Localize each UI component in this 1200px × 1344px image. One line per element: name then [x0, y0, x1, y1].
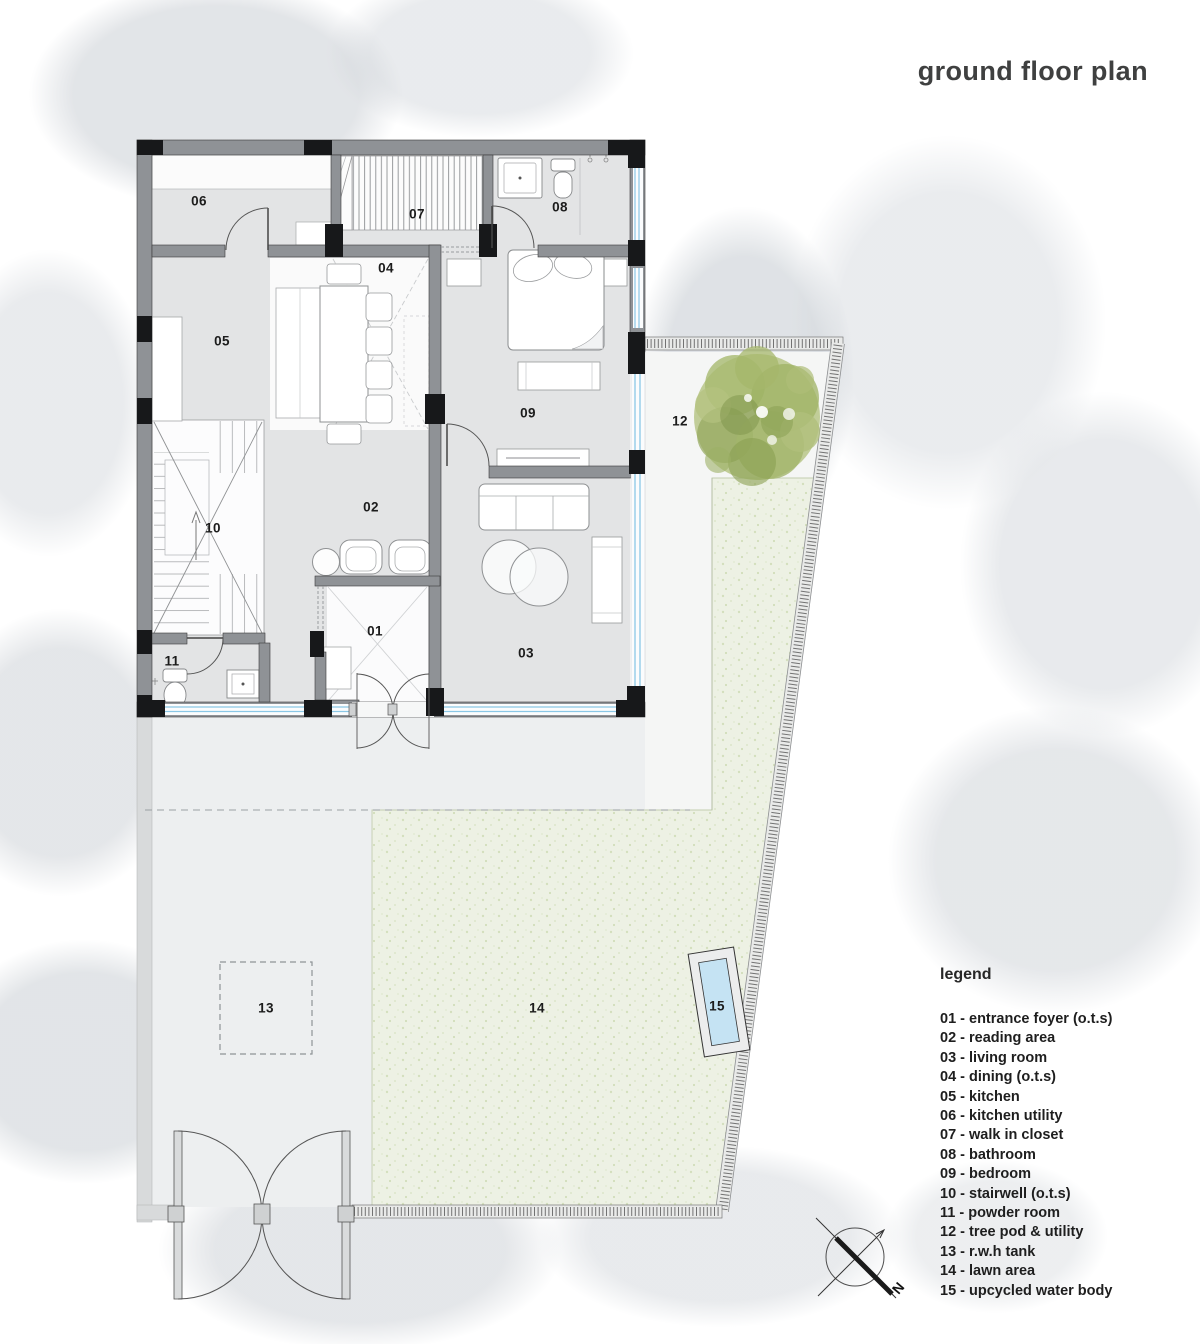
room-label-13: 13 [258, 1001, 274, 1016]
room-label-11: 11 [164, 654, 179, 669]
legend-item: 09 - bedroom [940, 1165, 1190, 1184]
wc-icon [551, 159, 575, 171]
sofa-icon [479, 484, 589, 530]
north-compass [816, 1218, 896, 1298]
tv-console-icon [497, 449, 589, 468]
side-table-icon [313, 549, 340, 576]
room-label-06: 06 [191, 194, 207, 209]
legend-item: 01 - entrance foyer (o.t.s) [940, 1010, 1190, 1029]
legend-item: 15 - upcycled water body [940, 1282, 1190, 1301]
legend-item: 06 - kitchen utility [940, 1107, 1190, 1126]
legend-item: 07 - walk in closet [940, 1126, 1190, 1145]
legend-item: 02 - reading area [940, 1029, 1190, 1048]
room-label-02: 02 [363, 500, 379, 515]
room-label-03: 03 [518, 646, 534, 661]
room-label-09: 09 [520, 406, 536, 421]
room-label-14: 14 [529, 1001, 545, 1016]
kitchen-island [276, 288, 320, 418]
entrance-foyer [324, 586, 428, 702]
legend-item: 13 - r.w.h tank [940, 1243, 1190, 1262]
bed-bench-icon [518, 362, 600, 390]
legend-item: 03 - living room [940, 1049, 1190, 1068]
legend-item: 12 - tree pod & utility [940, 1223, 1190, 1242]
legend-title: legend [940, 966, 1190, 984]
building [137, 140, 645, 749]
room-label-05: 05 [214, 334, 230, 349]
legend-item: 08 - bathroom [940, 1146, 1190, 1165]
foyer-cabinet [324, 647, 351, 689]
legend-item: 14 - lawn area [940, 1262, 1190, 1281]
north-needle [836, 1238, 892, 1294]
daybed-icon [592, 537, 622, 623]
legend: legend 01 - entrance foyer (o.t.s) 02 - … [940, 966, 1190, 1301]
legend-item: 10 - stairwell (o.t.s) [940, 1185, 1190, 1204]
room-label-10: 10 [205, 521, 221, 536]
legend-item: 05 - kitchen [940, 1088, 1190, 1107]
room-label-15: 15 [709, 999, 725, 1014]
left-boundary-wall [137, 717, 152, 1222]
legend-item: 04 - dining (o.t.s) [940, 1068, 1190, 1087]
room-label-12: 12 [672, 414, 688, 429]
floor-plan-page: ground floor plan [0, 0, 1200, 1344]
room-label-08: 08 [552, 200, 568, 215]
room-label-04: 04 [378, 261, 394, 276]
utility-counter [152, 155, 332, 189]
legend-item: 11 - powder room [940, 1204, 1190, 1223]
walk-in-closet-hatch [332, 156, 483, 230]
room-label-01: 01 [367, 624, 383, 639]
room-label-07: 07 [409, 207, 425, 222]
